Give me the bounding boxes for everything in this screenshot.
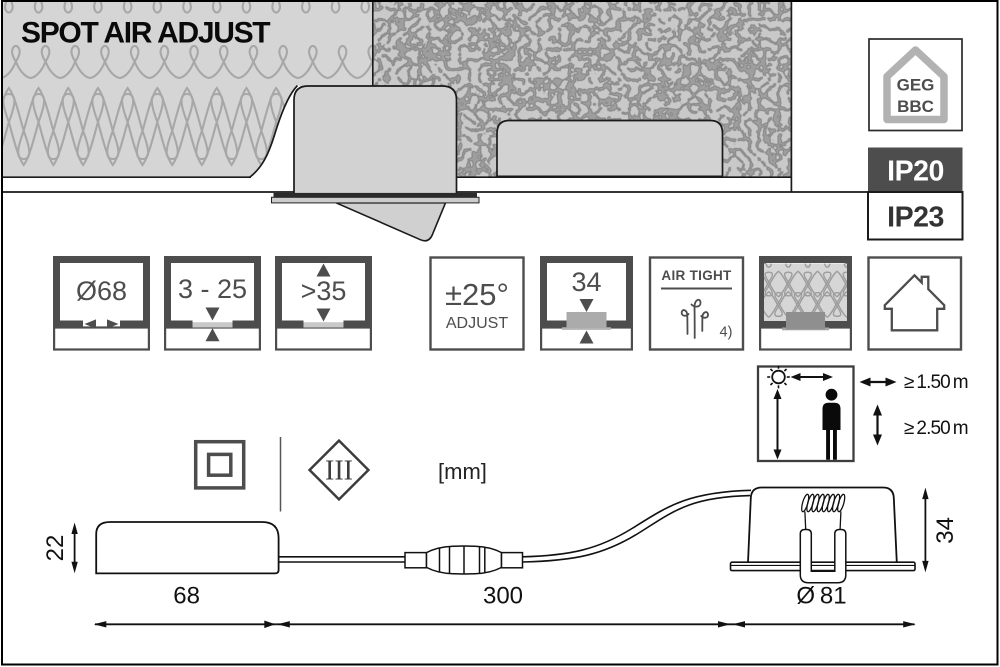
svg-text:≥ 2.50 m: ≥ 2.50 m <box>904 418 968 439</box>
svg-text:III: III <box>325 456 353 487</box>
svg-text:≥ 1.50 m: ≥ 1.50 m <box>904 372 968 393</box>
svg-text:[mm]: [mm] <box>438 459 487 484</box>
svg-text:4): 4) <box>720 325 733 341</box>
svg-text:Ø 81: Ø 81 <box>796 583 846 610</box>
svg-text:3 - 25: 3 - 25 <box>178 274 247 304</box>
svg-text:68: 68 <box>173 583 200 610</box>
svg-text:ADJUST: ADJUST <box>446 315 508 332</box>
svg-text:GEG: GEG <box>897 76 935 95</box>
svg-text:34: 34 <box>932 517 959 544</box>
svg-text:AIR TIGHT: AIR TIGHT <box>661 268 732 283</box>
svg-text:IP23: IP23 <box>887 202 944 234</box>
svg-text:IP20: IP20 <box>887 156 944 188</box>
svg-text:34: 34 <box>571 267 601 297</box>
svg-text:SPOT AIR ADJUST: SPOT AIR ADJUST <box>21 17 270 50</box>
svg-text:300: 300 <box>483 583 523 610</box>
svg-text:>35: >35 <box>301 276 347 306</box>
svg-text:±25°: ±25° <box>445 277 509 312</box>
svg-text:BBC: BBC <box>897 97 934 116</box>
svg-text:22: 22 <box>42 535 69 562</box>
svg-text:Ø68: Ø68 <box>76 276 127 306</box>
